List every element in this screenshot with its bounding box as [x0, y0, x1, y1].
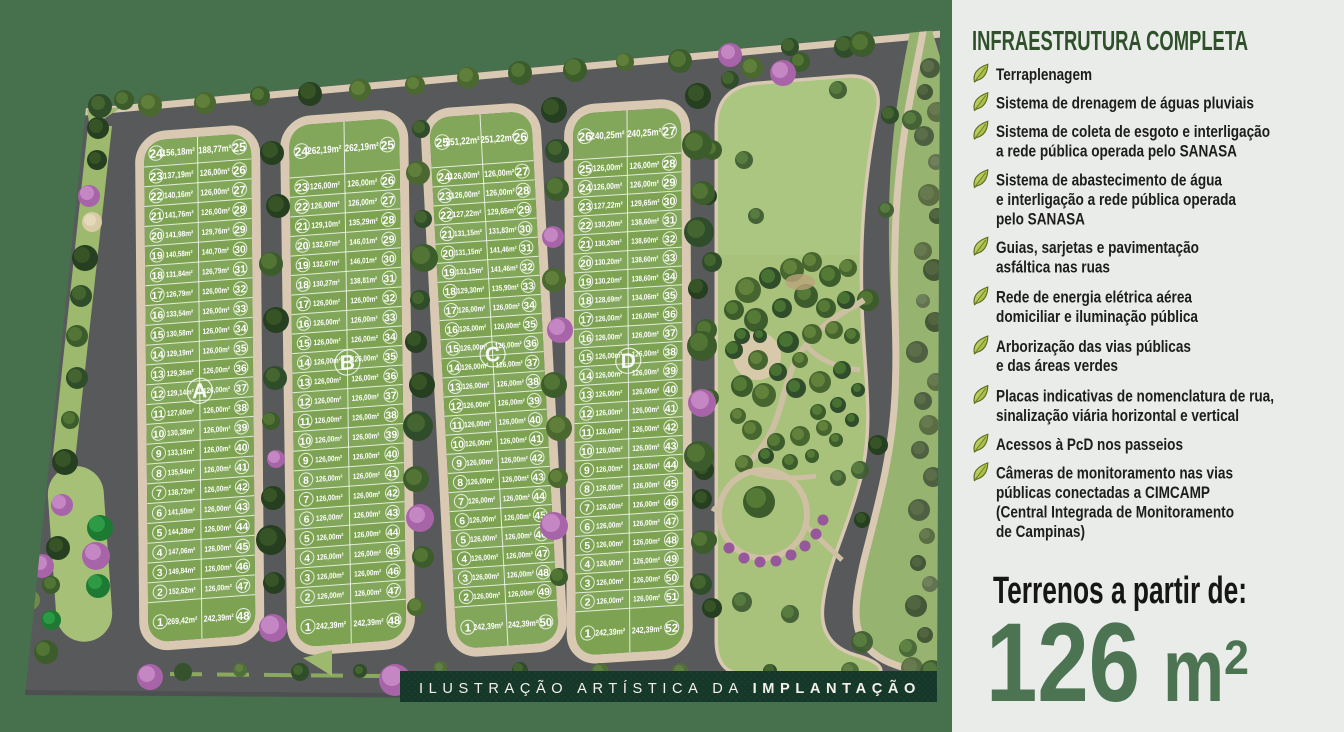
svg-text:126,00m²: 126,00m² — [507, 569, 535, 580]
svg-text:126,00m²: 126,00m² — [632, 461, 659, 472]
svg-text:6: 6 — [459, 516, 466, 527]
svg-text:3: 3 — [157, 568, 163, 579]
svg-text:1: 1 — [585, 628, 592, 640]
svg-text:7: 7 — [303, 495, 309, 506]
svg-text:130,20m²: 130,20m² — [595, 275, 622, 286]
svg-text:126,00m²: 126,00m² — [596, 539, 623, 550]
svg-text:(Central Integrada de Monitora: (Central Integrada de Monitoramento — [996, 502, 1234, 521]
svg-text:126,00m²: 126,00m² — [596, 558, 623, 569]
svg-text:135,90m²: 135,90m² — [492, 282, 520, 293]
svg-text:141,46m²: 141,46m² — [491, 263, 519, 274]
svg-text:a rede pública operada pelo SA: a rede pública operada pelo SANASA — [996, 141, 1237, 160]
svg-text:126,00m²: 126,00m² — [459, 323, 487, 334]
svg-text:8: 8 — [156, 469, 162, 480]
svg-text:138,60m²: 138,60m² — [631, 254, 658, 265]
svg-text:126,00m²: 126,00m² — [503, 492, 531, 503]
svg-text:126,00m²: 126,00m² — [595, 388, 622, 399]
svg-text:7: 7 — [458, 497, 465, 508]
svg-text:126,00m²: 126,00m² — [632, 329, 659, 340]
svg-text:6: 6 — [156, 508, 162, 519]
svg-text:134,06m²: 134,06m² — [632, 292, 659, 303]
svg-text:4: 4 — [157, 548, 163, 559]
svg-text:8: 8 — [457, 478, 464, 489]
svg-text:127,22m²: 127,22m² — [594, 200, 623, 211]
svg-text:126,00m²: 126,00m² — [470, 533, 498, 544]
svg-text:5: 5 — [304, 534, 310, 545]
svg-text:B: B — [340, 351, 355, 375]
svg-text:126,00m²: 126,00m² — [469, 514, 497, 525]
svg-text:5: 5 — [584, 541, 590, 552]
svg-text:126,00m²: 126,00m² — [596, 576, 623, 587]
svg-text:126,00m²: 126,00m² — [468, 495, 496, 506]
svg-text:141,46m²: 141,46m² — [490, 244, 518, 255]
svg-text:126,00m²: 126,00m² — [473, 590, 501, 601]
svg-text:5: 5 — [157, 528, 163, 539]
svg-text:Sistema de coleta de esgoto e: Sistema de coleta de esgoto e interligaç… — [996, 122, 1270, 141]
svg-text:126,00m²: 126,00m² — [465, 438, 493, 449]
svg-text:129,65m²: 129,65m² — [630, 198, 659, 209]
svg-text:240,25m²: 240,25m² — [627, 127, 662, 140]
svg-text:126,00m²: 126,00m² — [500, 435, 528, 446]
svg-text:126,00m²: 126,00m² — [633, 574, 660, 585]
svg-text:126,00m²: 126,00m² — [632, 367, 659, 378]
svg-text:126,00m²: 126,00m² — [499, 416, 527, 427]
svg-text:Terraplenagem: Terraplenagem — [996, 65, 1092, 84]
svg-text:129,30m²: 129,30m² — [457, 285, 485, 296]
svg-text:128,69m²: 128,69m² — [595, 294, 622, 305]
svg-text:4: 4 — [461, 554, 468, 565]
svg-text:126,00m²: 126,00m² — [595, 313, 622, 324]
svg-text:126,00m²: 126,00m² — [596, 445, 623, 456]
svg-text:242,39m²: 242,39m² — [473, 620, 504, 632]
svg-text:126,00m²: 126,00m² — [484, 167, 515, 179]
svg-text:asfáltica nas ruas: asfáltica nas ruas — [996, 257, 1110, 276]
svg-text:5: 5 — [460, 535, 467, 546]
svg-text:Acessos à PcD nos passeios: Acessos à PcD nos passeios — [996, 435, 1183, 454]
svg-text:2: 2 — [1224, 632, 1249, 685]
svg-text:1: 1 — [305, 622, 312, 635]
svg-text:Sistema de drenagem de águas p: Sistema de drenagem de águas pluviais — [996, 94, 1254, 113]
svg-text:131,15m²: 131,15m² — [455, 246, 483, 257]
svg-text:Placas indicativas de nomencla: Placas indicativas de nomenclatura de ru… — [996, 386, 1274, 405]
svg-text:126,00m²: 126,00m² — [596, 520, 623, 531]
svg-text:4: 4 — [304, 553, 310, 564]
svg-text:INFRAESTRUTURA COMPLETA: INFRAESTRUTURA COMPLETA — [972, 25, 1248, 56]
svg-text:8: 8 — [303, 475, 309, 486]
svg-text:126,00m²: 126,00m² — [633, 499, 660, 510]
svg-text:6: 6 — [304, 514, 310, 525]
svg-text:126,00m²: 126,00m² — [633, 536, 660, 547]
svg-text:126: 126 — [986, 600, 1140, 725]
svg-text:126,00m²: 126,00m² — [462, 380, 490, 391]
svg-text:130,20m²: 130,20m² — [594, 219, 622, 230]
svg-text:sinalização viária horizontal: sinalização viária horizontal e vertical — [996, 406, 1239, 425]
svg-text:de Campinas): de Campinas) — [996, 522, 1085, 541]
svg-text:2: 2 — [585, 597, 591, 608]
svg-text:126,00m²: 126,00m² — [595, 369, 622, 380]
svg-text:126,00m²: 126,00m² — [471, 552, 499, 563]
svg-text:3: 3 — [304, 573, 310, 584]
svg-text:126,00m²: 126,00m² — [501, 454, 529, 465]
svg-text:126,00m²: 126,00m² — [464, 418, 492, 429]
svg-text:130,20m²: 130,20m² — [595, 256, 622, 267]
svg-text:240,25m²: 240,25m² — [590, 129, 625, 142]
svg-text:126,00m²: 126,00m² — [632, 442, 659, 453]
svg-text:6: 6 — [584, 522, 590, 533]
svg-text:m: m — [1163, 621, 1224, 721]
svg-text:9: 9 — [156, 449, 162, 460]
svg-text:126,00m²: 126,00m² — [632, 348, 659, 359]
svg-text:9: 9 — [456, 459, 463, 470]
svg-text:126,00m²: 126,00m² — [497, 378, 525, 389]
svg-text:126,00m²: 126,00m² — [458, 304, 486, 315]
svg-text:126,00m²: 126,00m² — [633, 480, 660, 491]
svg-text:D: D — [621, 349, 636, 373]
svg-text:126,00m²: 126,00m² — [504, 512, 532, 523]
svg-text:131,15m²: 131,15m² — [456, 266, 484, 277]
svg-text:1: 1 — [157, 617, 164, 630]
svg-text:e das áreas verdes: e das áreas verdes — [996, 356, 1118, 375]
svg-text:138,60m²: 138,60m² — [631, 273, 658, 284]
svg-text:126,00m²: 126,00m² — [593, 180, 622, 192]
svg-text:126,00m²: 126,00m² — [506, 550, 534, 561]
svg-text:242,39m²: 242,39m² — [595, 626, 625, 638]
svg-text:126,00m²: 126,00m² — [632, 310, 659, 321]
svg-text:126,00m²: 126,00m² — [630, 178, 659, 190]
svg-text:126,00m²: 126,00m² — [451, 188, 481, 200]
svg-text:Câmeras de monitoramento nas v: Câmeras de monitoramento nas vias — [996, 464, 1233, 483]
svg-text:138,60m²: 138,60m² — [631, 235, 658, 246]
svg-text:A: A — [192, 379, 207, 403]
svg-text:domiciliar e iluminação públic: domiciliar e iluminação pública — [996, 307, 1198, 326]
svg-text:126,00m²: 126,00m² — [502, 473, 530, 484]
svg-text:7: 7 — [584, 503, 590, 514]
svg-text:126,00m²: 126,00m² — [596, 595, 623, 606]
svg-text:pelo SANASA: pelo SANASA — [996, 209, 1085, 228]
svg-text:9: 9 — [303, 456, 309, 467]
svg-text:126,00m²: 126,00m² — [633, 518, 660, 529]
svg-text:3: 3 — [462, 573, 469, 584]
svg-text:8: 8 — [584, 484, 590, 495]
svg-text:126,00m²: 126,00m² — [632, 405, 659, 416]
svg-text:2: 2 — [305, 592, 311, 603]
svg-text:126,00m²: 126,00m² — [463, 399, 491, 410]
svg-text:138,60m²: 138,60m² — [631, 216, 659, 227]
svg-text:126,00m²: 126,00m² — [633, 555, 660, 566]
svg-text:126,00m²: 126,00m² — [596, 426, 623, 437]
svg-text:ILUSTRAÇÃO ARTÍSTICA DA IMPLAN: ILUSTRAÇÃO ARTÍSTICA DA IMPLANTAÇÃO — [419, 679, 921, 697]
svg-text:126,00m²: 126,00m² — [593, 161, 623, 173]
svg-text:126,00m²: 126,00m² — [595, 332, 622, 343]
svg-text:Sistema de abastecimento de ág: Sistema de abastecimento de água — [996, 171, 1222, 190]
svg-text:126,00m²: 126,00m² — [595, 407, 622, 418]
svg-text:públicas conectadas a CIMCAMP: públicas conectadas a CIMCAMP — [996, 483, 1210, 502]
svg-text:126,00m²: 126,00m² — [596, 501, 623, 512]
svg-text:126,00m²: 126,00m² — [633, 593, 660, 604]
svg-text:2: 2 — [463, 592, 470, 603]
svg-text:4: 4 — [584, 560, 590, 571]
svg-text:126,00m²: 126,00m² — [596, 463, 623, 474]
svg-text:e interligação a rede pública: e interligação a rede pública operada — [996, 190, 1236, 209]
svg-text:126,00m²: 126,00m² — [485, 186, 515, 198]
svg-text:126,00m²: 126,00m² — [596, 482, 623, 493]
svg-text:126,00m²: 126,00m² — [493, 301, 521, 312]
svg-text:126,00m²: 126,00m² — [508, 588, 536, 599]
svg-text:130,20m²: 130,20m² — [595, 238, 622, 249]
svg-text:242,39m²: 242,39m² — [508, 618, 539, 630]
svg-text:126,00m²: 126,00m² — [498, 397, 526, 408]
svg-text:126,00m²: 126,00m² — [595, 351, 622, 362]
svg-text:126,00m²: 126,00m² — [629, 159, 659, 171]
svg-text:126,00m²: 126,00m² — [632, 423, 659, 434]
svg-text:126,00m²: 126,00m² — [494, 320, 522, 331]
svg-text:242,39m²: 242,39m² — [632, 624, 662, 636]
svg-text:C: C — [484, 343, 500, 367]
svg-text:Guias, sarjetas e pavimentação: Guias, sarjetas e pavimentação — [996, 238, 1199, 257]
svg-text:Rede de energia elétrica aérea: Rede de energia elétrica aérea — [996, 288, 1192, 307]
svg-text:126,00m²: 126,00m² — [467, 476, 495, 487]
svg-text:126,00m²: 126,00m² — [505, 531, 533, 542]
svg-text:2: 2 — [157, 588, 163, 599]
svg-text:126,00m²: 126,00m² — [472, 571, 500, 582]
svg-text:7: 7 — [156, 489, 162, 500]
svg-text:126,00m²: 126,00m² — [449, 169, 480, 181]
svg-text:3: 3 — [585, 579, 591, 590]
svg-text:9: 9 — [584, 466, 590, 477]
svg-text:126,00m²: 126,00m² — [466, 457, 494, 468]
svg-text:Arborização das vias públicas: Arborização das vias públicas — [996, 337, 1191, 356]
svg-text:126,00m²: 126,00m² — [632, 386, 659, 397]
